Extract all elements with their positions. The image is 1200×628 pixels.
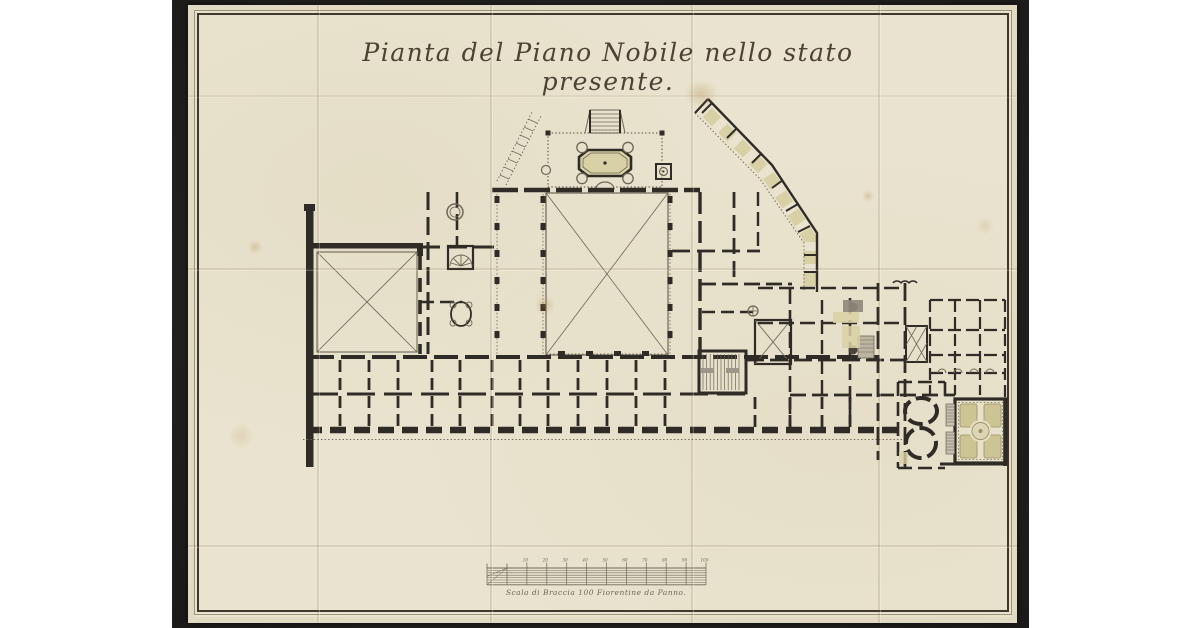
paper-frame	[197, 13, 1009, 612]
plan-title: Pianta del Piano Nobile nello stato pres…	[358, 38, 858, 96]
paper-frame-outer	[194, 10, 1012, 615]
page-background: Pianta del Piano Nobile nello stato pres…	[0, 0, 1200, 628]
paper-sheet: Pianta del Piano Nobile nello stato pres…	[188, 5, 1017, 623]
photo-mat: Pianta del Piano Nobile nello stato pres…	[172, 0, 1029, 628]
scale-caption: Scala di Braccia 100 Fiorentine da Panno…	[476, 588, 716, 597]
